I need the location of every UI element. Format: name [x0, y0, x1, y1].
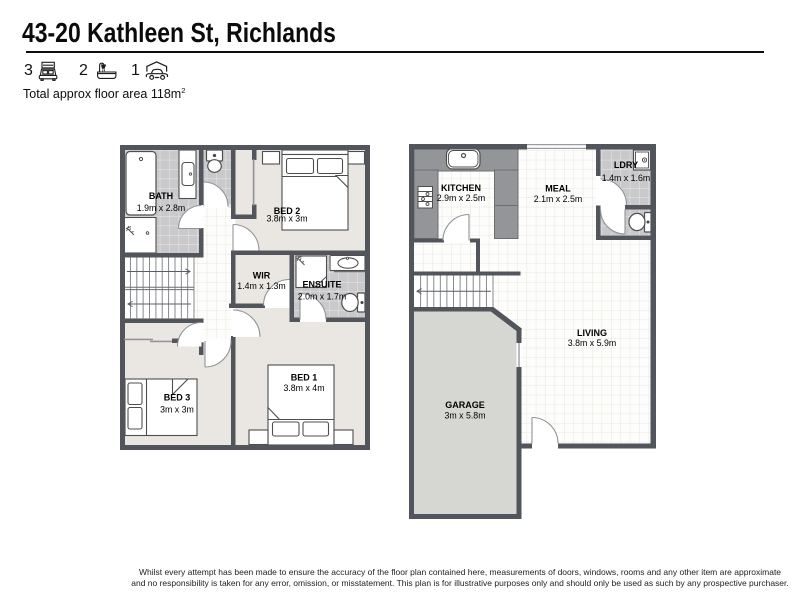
svg-text:MEAL: MEAL — [545, 184, 571, 194]
svg-text:BED 1: BED 1 — [291, 373, 318, 383]
svg-text:3.8m x 3m: 3.8m x 3m — [266, 214, 307, 224]
svg-text:LDRY: LDRY — [614, 160, 638, 170]
svg-text:3m x 5.8m: 3m x 5.8m — [444, 411, 485, 421]
svg-text:2.1m x 2.5m: 2.1m x 2.5m — [534, 194, 582, 204]
svg-text:WIR: WIR — [253, 271, 271, 281]
svg-text:3m x 3m: 3m x 3m — [160, 405, 194, 415]
svg-text:BATH: BATH — [149, 191, 173, 201]
svg-text:1.4m x 1.3m: 1.4m x 1.3m — [237, 281, 285, 291]
svg-text:1.4m x 1.6m: 1.4m x 1.6m — [602, 173, 650, 183]
svg-text:BED 3: BED 3 — [164, 393, 191, 403]
svg-text:LIVING: LIVING — [577, 328, 607, 338]
svg-text:GARAGE: GARAGE — [445, 400, 485, 410]
svg-text:2.0m x 1.7m: 2.0m x 1.7m — [298, 292, 346, 302]
svg-text:KITCHEN: KITCHEN — [441, 183, 481, 193]
svg-text:ENSUITE: ENSUITE — [302, 280, 341, 290]
svg-text:2.9m x 2.5m: 2.9m x 2.5m — [437, 193, 485, 203]
svg-text:3.8m x 5.9m: 3.8m x 5.9m — [568, 338, 616, 348]
svg-text:3.8m x 4m: 3.8m x 4m — [283, 383, 324, 393]
svg-text:1.9m x 2.8m: 1.9m x 2.8m — [137, 203, 185, 213]
